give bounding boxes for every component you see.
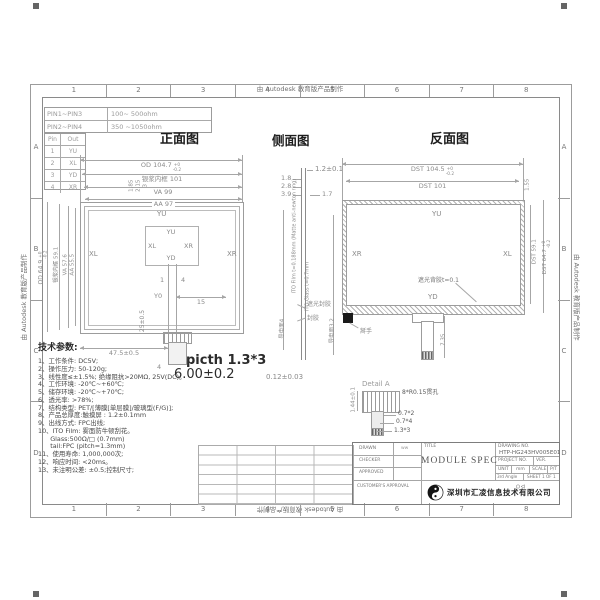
table-cell: XR (61, 182, 85, 193)
dim-dst-64-7: DST 64.7+0-0.2 (543, 222, 553, 292)
side-view-title: 侧面图 (272, 135, 310, 148)
dim-25: 25±0.5 (140, 303, 146, 339)
dim-thickness: 1.2±0.1 (315, 166, 343, 173)
tb-pt-label: P/T (550, 468, 557, 473)
tb-title-label: TITLE (424, 445, 436, 450)
tb-line (353, 480, 559, 481)
back-view-inner (346, 204, 521, 306)
label-shade-glue: 遮光背胶t=0.1 (418, 278, 459, 284)
table-cell: 100~ 500ohm (108, 108, 211, 120)
dim-dst-width: DST 104.5+0-0.2 (342, 156, 523, 168)
back-view-title: 反面图 (430, 133, 469, 146)
table-cell: PIN2~PIN4 (45, 121, 108, 133)
grid-number: 3 (170, 84, 235, 97)
dim-dst-59-1: DST 59.1 (532, 222, 538, 282)
pin-number-4: 4 (181, 277, 185, 284)
dim-2-8: 2.8 (281, 183, 291, 190)
tech-params-heading: 技术参数: (38, 344, 78, 353)
front-label-y0: Y0 (154, 293, 162, 300)
tb-unit-label: UNIT (498, 468, 509, 473)
grid-letter: A (558, 97, 570, 198)
pin-number-1: 1 (160, 277, 164, 284)
table-cell: PIN1~PIN3 (45, 108, 108, 120)
dim-1-55: 1.55 (525, 173, 531, 197)
tb-line (393, 443, 394, 480)
bond-label-xl: XL (148, 243, 156, 250)
tb-line (421, 443, 422, 504)
table-header: Out (61, 134, 85, 145)
table-cell: 2 (45, 158, 61, 169)
note-ito-film: ITO Film t=0.188mm (Matte anti-newton ri… (293, 184, 298, 294)
front-electrode-xl: XL (89, 251, 98, 258)
dim-15: 15 (176, 289, 226, 301)
grid-number: 4 (235, 84, 300, 97)
label-shade-seal: 遮光封胶 (307, 302, 331, 308)
dim-3-9: 3.9 (281, 191, 291, 198)
pull-tab (343, 313, 353, 323)
tb-scale-label: SCALE (532, 468, 546, 473)
dim-dst-101: DST 101 (346, 173, 519, 185)
tb-drawing-no-value: HTP-HG243HV005E01 (499, 451, 560, 457)
front-electrode-yu: YU (157, 211, 166, 218)
tb-drawing-no-label: DRAWING NO. (498, 445, 529, 450)
tb-unit-value: mm (516, 468, 525, 473)
label-pull-tab: 掰手 (360, 329, 372, 335)
grid-letter: A (30, 97, 42, 198)
grid-number: 1 (42, 503, 106, 516)
note-ito-glass: ITO Glass t=0.7mm (306, 252, 311, 322)
dim-0-7x4: 0.7*4 (396, 419, 412, 425)
grid-number: 2 (106, 84, 171, 97)
dim-7-35: 7.35 (441, 325, 447, 355)
title-block: DRAWN ww CHECKER APPROVED CUSTOMER'S APP… (352, 442, 560, 505)
dim-va-height: VA 57.6 (63, 235, 69, 295)
tb-line (533, 456, 534, 465)
tb-approved-label: APPROVED (359, 471, 383, 476)
dim-conductive-left: 导电面4 (280, 309, 286, 349)
tb-line (547, 465, 548, 473)
back-fpc-tail (421, 321, 434, 353)
grid-letter: B (558, 198, 570, 300)
back-fpc-tip (421, 351, 434, 360)
table-cell: 1 (45, 146, 61, 157)
table-header: Pin (45, 134, 61, 145)
tb-checker-label: CHECKER (359, 459, 380, 464)
tb-angle-label: 3rd Angle (497, 475, 517, 479)
tb-project-no-label: PROJECT NO. (498, 459, 527, 464)
dim-1-8: 1.8 (281, 175, 291, 182)
dim-line (380, 423, 394, 424)
tb-ver-label: VER. (536, 459, 546, 464)
dim-line (310, 195, 320, 196)
grid-number: 2 (106, 503, 171, 516)
grid-number: 6 (364, 84, 429, 97)
dim-holes: 8*R0.15贯孔 (402, 390, 438, 396)
dim-conductive-right: 导电面3.2 (330, 309, 336, 353)
grid-number: 5 (300, 84, 365, 97)
tb-drawn-label: DRAWN (359, 447, 376, 452)
bond-label-yu: YU (145, 229, 197, 236)
corner-mark (561, 3, 567, 9)
grid-number: 8 (493, 84, 558, 97)
corner-mark (33, 3, 39, 9)
dim-1-3x3: 1.3*3 (394, 428, 410, 434)
dim-47-5: 47.5±0.5 (80, 340, 168, 352)
back-electrode-yd: YD (428, 294, 438, 301)
dim-od-width: OD 104.7+0-0.2 (80, 152, 242, 164)
tb-line (495, 456, 559, 457)
tb-line (529, 465, 530, 473)
tb-line (511, 465, 512, 473)
tb-customer-approval-label: CUSTOMER'S APPROVAL (357, 484, 417, 490)
company-name: 深圳市汇凌信息技术有限公司 (447, 489, 551, 497)
grid-number: 7 (429, 84, 494, 97)
lead-line (168, 264, 169, 332)
front-electrode-xr: XR (227, 251, 237, 258)
grid-numbers-top: 12345678 (42, 84, 558, 97)
dim-line (376, 431, 392, 432)
grid-number: 1 (42, 84, 106, 97)
tb-line (495, 465, 559, 466)
table-cell: 4 (45, 182, 61, 193)
dim-0-7x2: 0.7*2 (398, 411, 414, 417)
drawing-sheet: 由 Autodesk 教育版产品制作 由 Autodesk 教育版产品制作 由 … (0, 0, 600, 600)
dim-inset-1: 1.85 (129, 173, 135, 199)
dim-line (307, 170, 313, 171)
dim-1-44: 1.44±0.1 (351, 382, 357, 418)
pin-resistance-table: PIN1~PIN3100~ 500ohm PIN2~PIN4350 ~1050o… (44, 107, 212, 133)
detail-a-title: Detail A (362, 381, 390, 388)
tb-sheet-label: SHEET 1 OF 1 (527, 475, 556, 479)
revision-table (198, 445, 354, 505)
autodesk-watermark-right: 由 Autodesk 教育版产品制作 (573, 27, 580, 567)
dim-line (357, 391, 358, 411)
autodesk-watermark-left: 由 Autodesk 教育版产品制作 (21, 27, 28, 567)
front-view-title: 正面图 (160, 133, 199, 146)
extension-line (242, 155, 243, 202)
tb-line (353, 467, 421, 468)
tb-line (353, 455, 421, 456)
label-seal: 封胶 (307, 316, 319, 322)
detail-comb (362, 391, 400, 413)
table-cell: 3 (45, 170, 61, 181)
bond-label-yd: YD (145, 255, 197, 262)
tb-drawn-value: ww (401, 447, 408, 452)
tb-title-value: MODULE SPEC (421, 457, 495, 467)
corner-mark (561, 591, 567, 597)
dim-silver-frame-height: 银浆内框 59.1 (54, 230, 60, 300)
grid-letter: C (558, 300, 570, 402)
corner-mark (33, 591, 39, 597)
bond-label-xr: XR (184, 243, 193, 250)
company-logo (427, 484, 444, 505)
dim-od-height: OD 64.9+0-0.2 (39, 232, 50, 302)
dim-line (384, 415, 396, 416)
back-electrode-xr: XR (352, 251, 362, 258)
back-electrode-yu: YU (432, 211, 441, 218)
dim-1-7: 1.7 (322, 191, 332, 198)
dim-0-12: 0.12±0.03 (266, 374, 303, 381)
back-electrode-xl: XL (503, 251, 512, 258)
dim-aa-height: AA 55.5 (70, 235, 76, 295)
detail-tip (371, 428, 384, 436)
